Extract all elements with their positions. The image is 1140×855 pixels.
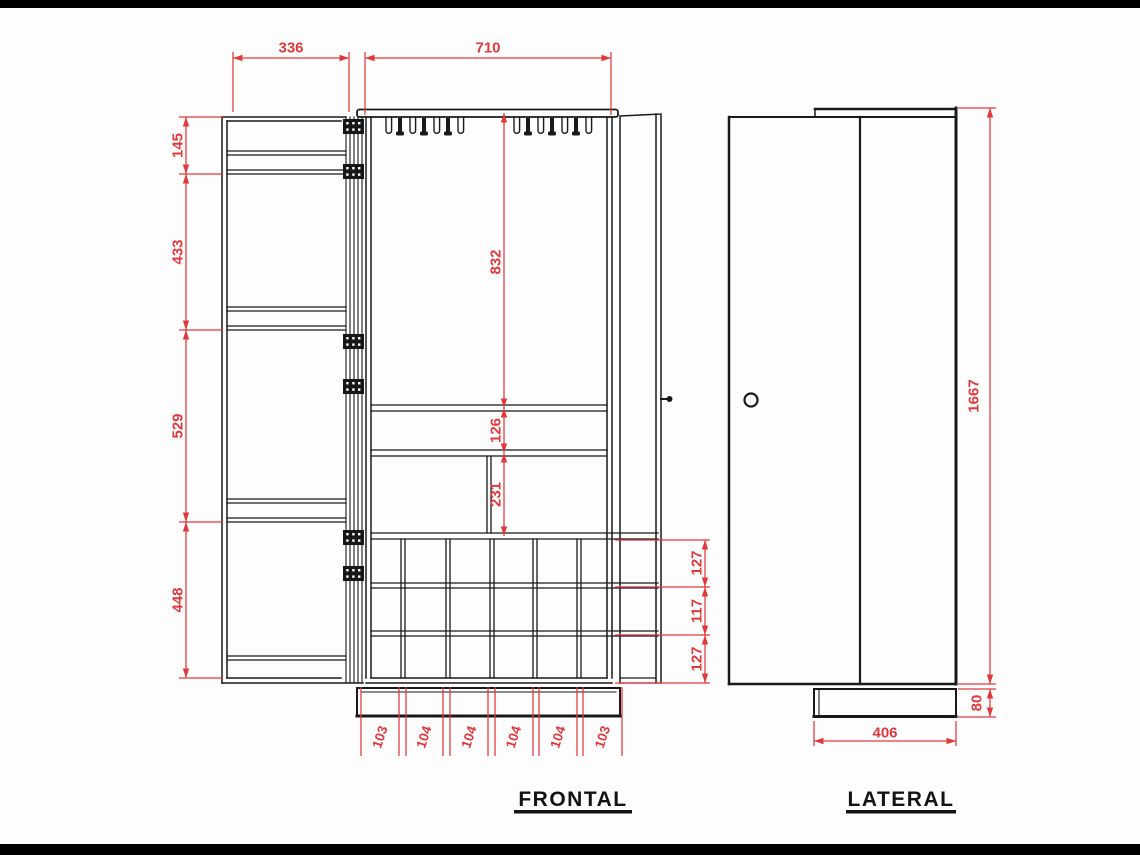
hinge-icon bbox=[343, 119, 364, 134]
lateral-view-label: LATERAL bbox=[848, 788, 955, 811]
scanned-drawing-page: 336 710 145 433 529 448 832 126 231 127 … bbox=[0, 0, 1140, 855]
frontal-view-label: FRONTAL bbox=[518, 788, 627, 811]
dim-door-section-4: 448 bbox=[170, 587, 187, 612]
dim-open-door-width: 336 bbox=[278, 40, 303, 57]
hinge-icon bbox=[343, 334, 364, 349]
dim-door-section-1: 145 bbox=[170, 133, 187, 158]
dim-door-section-2: 433 bbox=[170, 239, 187, 264]
dim-plinth-height: 80 bbox=[969, 695, 986, 712]
dim-rack-row-2: 117 bbox=[689, 599, 706, 623]
dim-depth: 406 bbox=[872, 725, 897, 742]
hinge-icon bbox=[343, 379, 364, 394]
hinge-icon bbox=[343, 164, 364, 179]
frontal-label-underline bbox=[514, 810, 632, 814]
dim-shelf-section-height: 126 bbox=[488, 418, 505, 443]
dim-cabinet-width: 710 bbox=[475, 40, 500, 57]
lateral-label-underline bbox=[846, 810, 956, 814]
dim-rack-row-1: 127 bbox=[689, 550, 706, 575]
dim-upper-height: 832 bbox=[488, 249, 505, 274]
hinge-icon bbox=[343, 566, 364, 581]
right-door-knob bbox=[667, 396, 673, 402]
top-bar bbox=[0, 0, 1140, 8]
dim-door-section-3: 529 bbox=[170, 413, 187, 438]
dim-middle-section-height: 231 bbox=[488, 482, 505, 507]
technical-drawing-canvas: 336 710 145 433 529 448 832 126 231 127 … bbox=[0, 0, 1140, 855]
bottom-bar bbox=[0, 844, 1140, 855]
hinge-icon bbox=[343, 530, 364, 545]
dim-total-height: 1667 bbox=[966, 379, 983, 412]
dim-rack-row-3: 127 bbox=[689, 646, 706, 671]
